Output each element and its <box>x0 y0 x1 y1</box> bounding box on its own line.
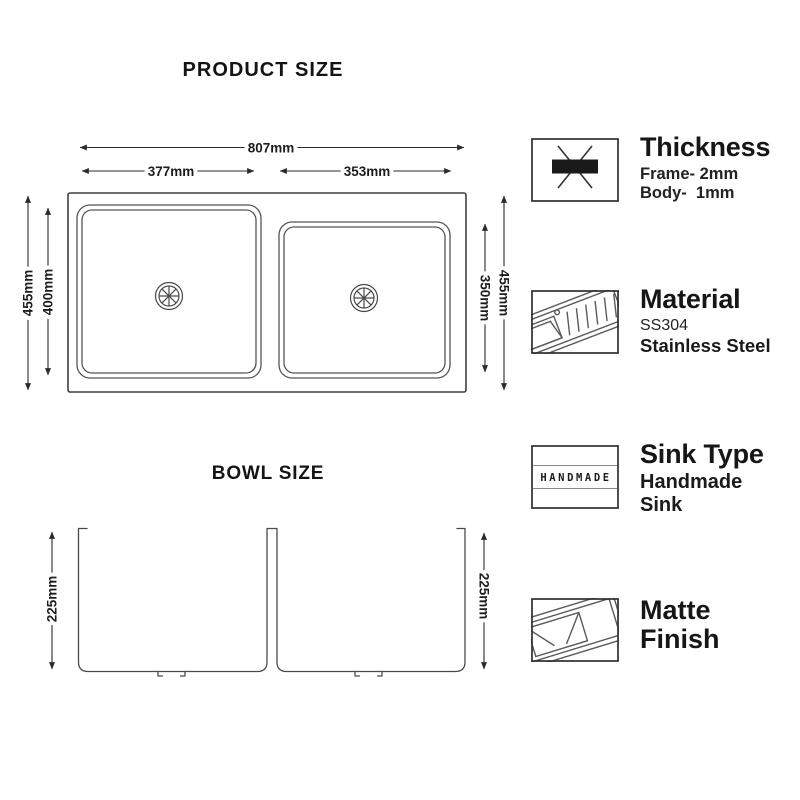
overall-depth-left-label: 455mm <box>21 270 36 317</box>
matte-finish-sink-icon <box>531 598 619 662</box>
bowls-profile <box>79 529 466 672</box>
left-drain-mark <box>158 672 185 677</box>
sink-frame-outline <box>68 193 466 392</box>
feature-detail: Stainless Steel <box>640 335 771 356</box>
feature-detail: Body- 1mm <box>640 184 770 203</box>
right-drain-icon <box>351 285 378 312</box>
feature-detail: Sink <box>640 494 764 517</box>
dim-overall-depth-left: 455mm <box>21 196 36 390</box>
feature-detail: Handmade <box>640 471 764 494</box>
feature-material: Material SS304 Stainless Steel <box>531 290 771 356</box>
feature-title-line1: Matte <box>640 596 720 625</box>
dim-left-bowl-width: 377mm <box>82 164 254 179</box>
feature-title-line2: Finish <box>640 625 720 654</box>
right-bowl-height-label: 225mm <box>477 573 492 620</box>
stainless-sink-icon <box>531 290 619 354</box>
feature-sink-type: HANDMADE Sink Type Handmade Sink <box>531 445 764 517</box>
right-bowl-width-label: 353mm <box>344 164 391 179</box>
left-drain-icon <box>156 283 183 310</box>
bowl-depth-dimensions: 225mm 225mm <box>45 532 492 669</box>
dim-left-bowl-height: 225mm <box>45 532 60 669</box>
feature-matte-finish: Matte Finish <box>531 598 720 662</box>
right-bowl-depth-label: 350mm <box>478 275 493 322</box>
dim-right-bowl-width: 353mm <box>280 164 451 179</box>
dim-left-bowl-depth: 400mm <box>41 208 56 375</box>
feature-thickness: Thickness Frame- 2mm Body- 1mm <box>531 138 770 203</box>
dim-right-bowl-depth: 350mm <box>478 224 493 372</box>
dim-overall-width: 807mm <box>80 141 464 156</box>
bowl-size-title: BOWL SIZE <box>212 463 324 484</box>
dim-overall-depth-right: 455mm <box>497 196 512 390</box>
product-size-title: PRODUCT SIZE <box>183 59 344 81</box>
overall-width-label: 807mm <box>248 141 295 156</box>
dimension-lines: 807mm 377mm 353mm 455mm 400mm 350mm 455m… <box>21 141 512 391</box>
sink-top-view <box>68 193 466 392</box>
left-bowl-depth-label: 400mm <box>41 269 56 316</box>
feature-title: Sink Type <box>640 440 764 468</box>
right-drain-mark <box>355 672 382 677</box>
sink-dimension-diagram: PRODUCT SIZE BOWL SIZE <box>0 0 520 800</box>
dim-right-bowl-height: 225mm <box>477 533 492 669</box>
left-bowl-width-label: 377mm <box>148 164 195 179</box>
handmade-stamp-text: HANDMADE <box>540 472 611 484</box>
feature-detail: SS304 <box>640 316 771 335</box>
feature-title: Material <box>640 285 771 313</box>
feature-title: Thickness <box>640 133 770 161</box>
feature-detail: Frame- 2mm <box>640 165 770 184</box>
metal-thickness-icon <box>531 138 619 202</box>
overall-depth-right-label: 455mm <box>497 270 512 317</box>
handmade-label-icon: HANDMADE <box>531 445 619 509</box>
left-bowl-height-label: 225mm <box>45 576 60 623</box>
bowl-cross-section <box>79 529 466 677</box>
